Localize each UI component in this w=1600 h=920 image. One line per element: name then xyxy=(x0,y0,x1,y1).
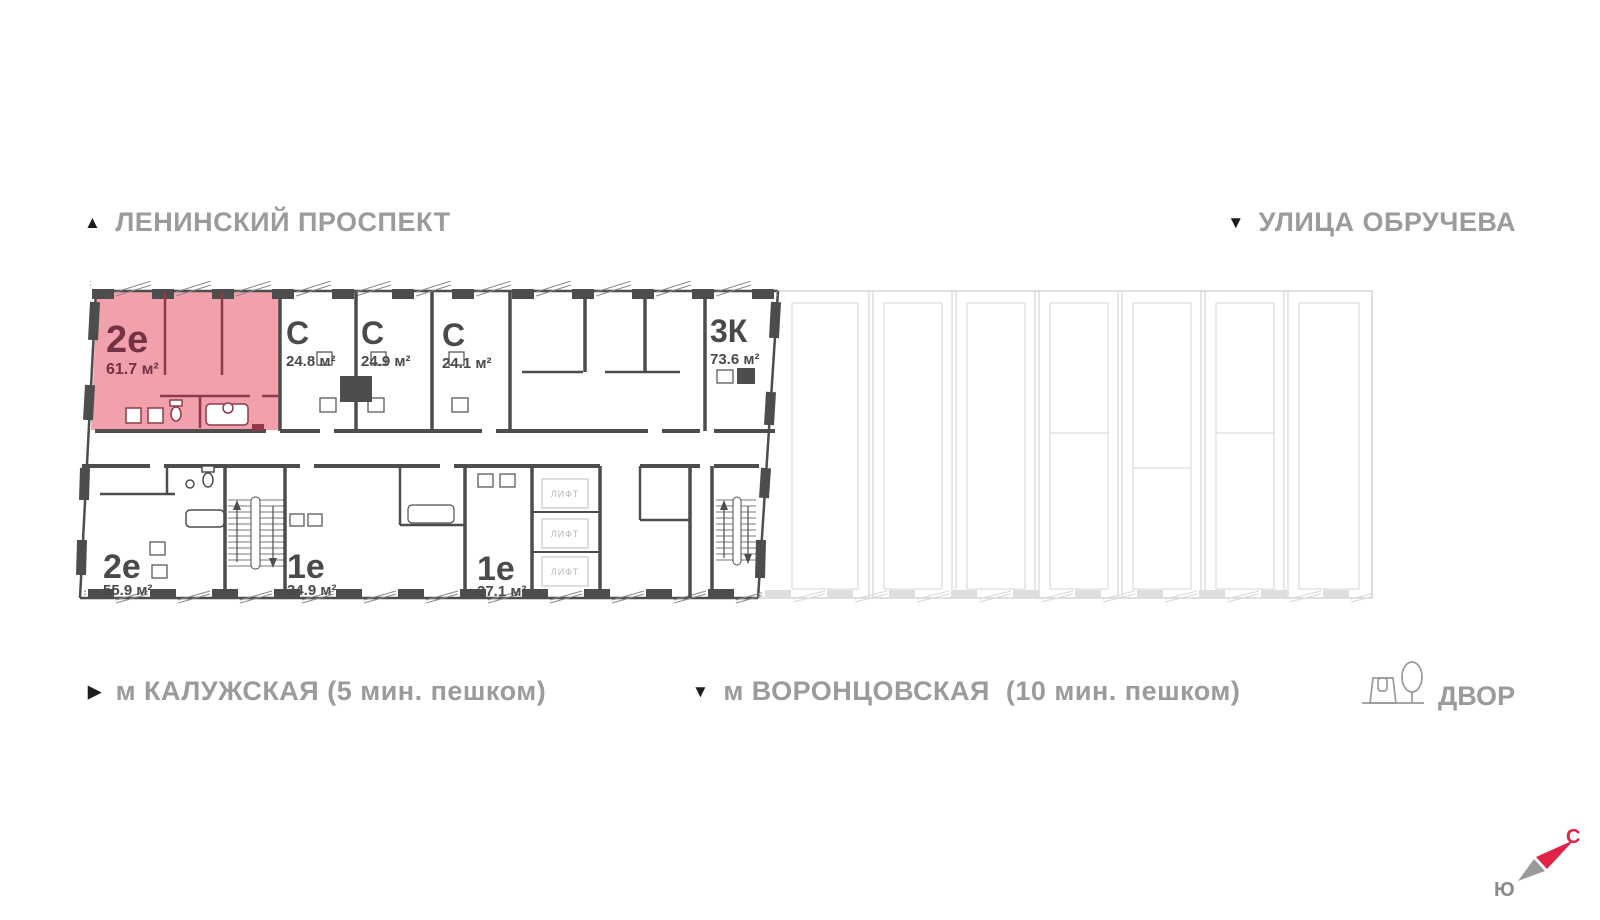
corridor-walls xyxy=(82,431,775,466)
unit-label-s-24-1[interactable]: С 24.1 м² xyxy=(442,317,491,372)
unit-type: С xyxy=(442,317,465,353)
unit-label-1e-34-9[interactable]: 1е 34.9 м² xyxy=(287,548,336,599)
unit-label-s-24-8[interactable]: С 24.8 м² xyxy=(286,315,335,370)
unit-type: 3К xyxy=(710,313,748,349)
unit-type: 2е xyxy=(103,548,141,586)
top-row-walls xyxy=(280,292,705,431)
staircase-left xyxy=(228,497,284,569)
unit-area: 55.9 м² xyxy=(103,582,152,599)
floor-plan: ЛИФТ ЛИФТ ЛИФТ 2е 61.7 м² С 24.8 м² С 24… xyxy=(0,0,1600,920)
unit-label-s-24-9[interactable]: С 24.9 м² xyxy=(361,315,410,370)
unit-label-1e-37-1[interactable]: 1е 37.1 м² xyxy=(477,550,526,600)
staircase-right xyxy=(716,497,756,565)
unit-type: С xyxy=(361,315,384,351)
bottom-row-fixtures xyxy=(150,466,515,578)
unit-type: С xyxy=(286,315,309,351)
elevator-3-label: ЛИФТ xyxy=(551,567,579,577)
elevator-block: ЛИФТ ЛИФТ ЛИФТ xyxy=(542,479,588,586)
unit-area: 37.1 м² xyxy=(477,583,526,600)
window-band-bottom xyxy=(84,589,762,605)
window-band-bottom-faint xyxy=(765,590,1372,603)
unit-type: 2е xyxy=(106,319,148,361)
building-faint-section xyxy=(758,291,1372,598)
unit-area: 24.8 м² xyxy=(286,353,335,370)
elevator-1-label: ЛИФТ xyxy=(551,489,579,499)
unit-label-2e-55-9[interactable]: 2е 55.9 м² xyxy=(103,548,152,599)
unit-area: 24.1 м² xyxy=(442,355,491,372)
floor-plan-page: ▲ ЛЕНИНСКИЙ ПРОСПЕКТ ▼ УЛИЦА ОБРУЧЕВА ▶ … xyxy=(0,0,1600,920)
unit-area: 73.6 м² xyxy=(710,351,759,368)
unit-type: 1е xyxy=(287,548,325,586)
unit-area: 34.9 м² xyxy=(287,582,336,599)
unit-label-3k-73-6[interactable]: 3К 73.6 м² xyxy=(710,313,759,368)
unit-area: 24.9 м² xyxy=(361,353,410,370)
elevator-2-label: ЛИФТ xyxy=(551,529,579,539)
unit-area: 61.7 м² xyxy=(106,361,159,378)
window-band-top xyxy=(90,281,778,299)
